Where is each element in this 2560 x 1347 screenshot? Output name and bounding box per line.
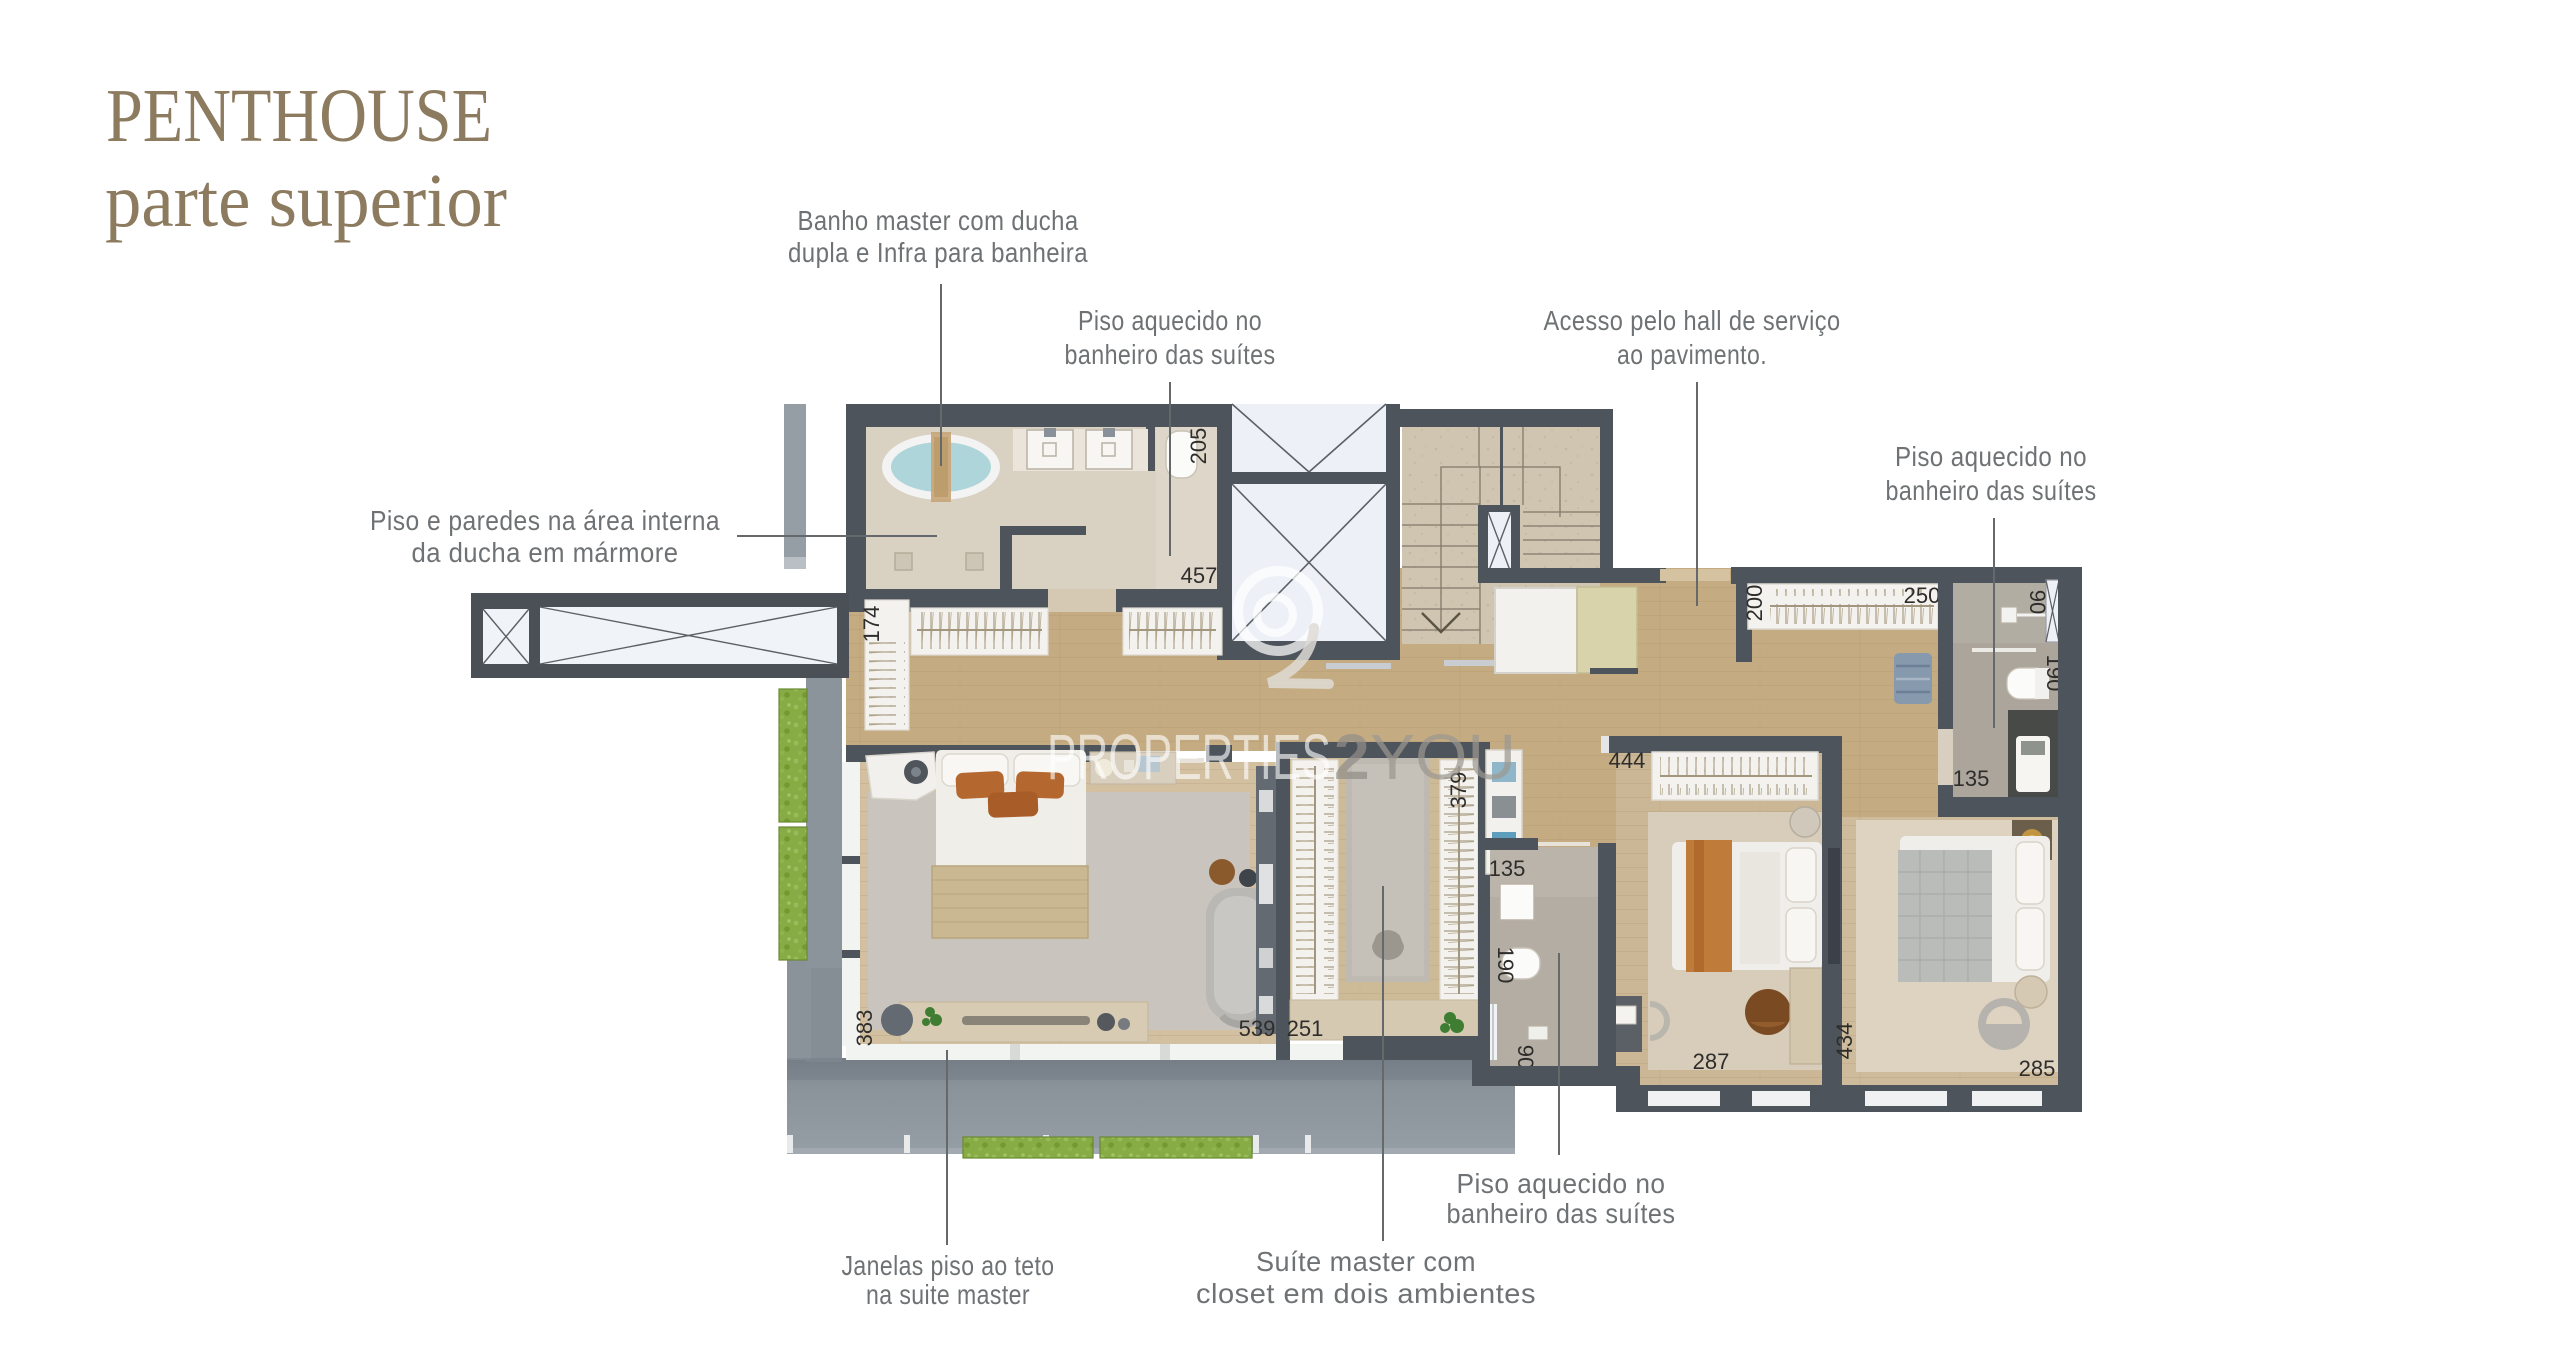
svg-text:Janelas piso ao teto: Janelas piso ao teto bbox=[842, 1250, 1055, 1281]
svg-text:90: 90 bbox=[1513, 1045, 1538, 1069]
svg-text:Piso e paredes na área interna: Piso e paredes na área interna bbox=[370, 505, 720, 536]
svg-text:Piso aquecido no: Piso aquecido no bbox=[1078, 305, 1262, 336]
svg-text:PENTHOUSE: PENTHOUSE bbox=[106, 74, 492, 158]
svg-text:Acesso pelo hall de serviço: Acesso pelo hall de serviço bbox=[1544, 305, 1841, 336]
svg-text:285: 285 bbox=[2019, 1056, 2056, 1081]
svg-text:383: 383 bbox=[852, 1010, 877, 1047]
svg-text:434: 434 bbox=[1832, 1023, 1857, 1060]
svg-text:Suíte master com: Suíte master com bbox=[1256, 1246, 1476, 1277]
svg-text:174: 174 bbox=[859, 606, 884, 643]
svg-text:PROPERTIES: PROPERTIES bbox=[1047, 721, 1331, 793]
svg-text:YOU: YOU bbox=[1370, 721, 1516, 793]
svg-text:Banho master com ducha: Banho master com ducha bbox=[798, 205, 1079, 236]
svg-text:2: 2 bbox=[1334, 721, 1370, 793]
svg-text:444: 444 bbox=[1609, 748, 1646, 773]
svg-text:251: 251 bbox=[1287, 1016, 1324, 1041]
svg-text:na suite master: na suite master bbox=[866, 1279, 1030, 1310]
svg-text:287: 287 bbox=[1693, 1049, 1730, 1074]
svg-text:banheiro das suítes: banheiro das suítes bbox=[1886, 475, 2097, 506]
svg-text:ao pavimento.: ao pavimento. bbox=[1617, 339, 1767, 370]
svg-text:parte superior: parte superior bbox=[105, 159, 507, 243]
svg-text:205: 205 bbox=[1186, 428, 1211, 465]
svg-text:Piso aquecido no: Piso aquecido no bbox=[1457, 1168, 1666, 1199]
svg-text:190: 190 bbox=[1493, 947, 1518, 984]
svg-text:banheiro das suítes: banheiro das suítes bbox=[1447, 1198, 1676, 1229]
svg-text:539: 539 bbox=[1239, 1016, 1276, 1041]
svg-text:Piso aquecido no: Piso aquecido no bbox=[1895, 441, 2087, 472]
svg-text:dupla e Infra para banheira: dupla e Infra para banheira bbox=[788, 237, 1088, 268]
svg-text:135: 135 bbox=[1489, 856, 1526, 881]
svg-text:90: 90 bbox=[2025, 590, 2050, 614]
svg-text:closet em dois ambientes: closet em dois ambientes bbox=[1196, 1278, 1536, 1309]
svg-text:135: 135 bbox=[1953, 766, 1990, 791]
svg-text:200: 200 bbox=[1742, 585, 1767, 622]
svg-text:250: 250 bbox=[1904, 583, 1941, 608]
svg-text:457: 457 bbox=[1181, 563, 1218, 588]
svg-text:banheiro das suítes: banheiro das suítes bbox=[1065, 339, 1276, 370]
svg-text:da ducha em mármore: da ducha em mármore bbox=[412, 537, 679, 568]
